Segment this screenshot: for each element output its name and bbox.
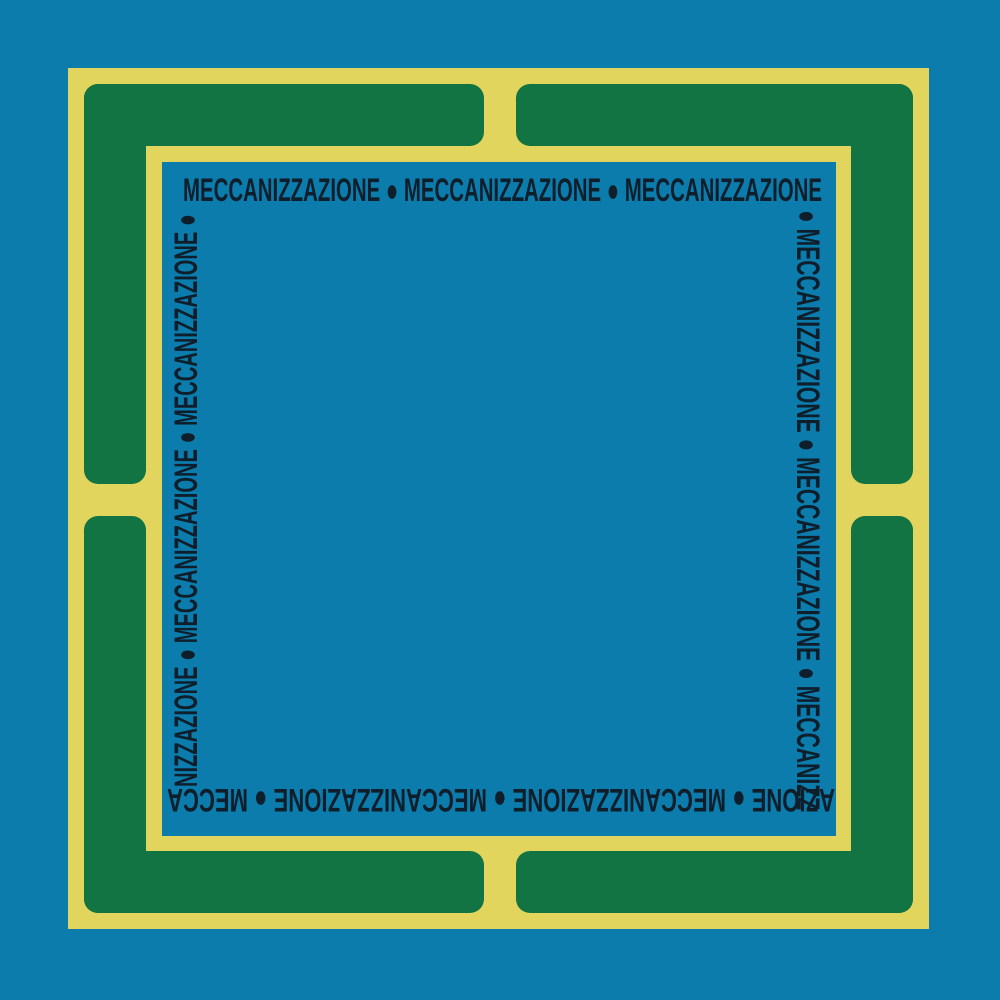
green-bar-top-right-vertical [851,84,913,484]
ring-text-right: ● MECCANIZZAZIONE ● MECCANIZZAZIONE ● ME… [790,210,826,810]
green-bar-bottom-right-vertical [851,516,913,913]
ring-text-bottom: AZIONE ● MECCANIZZAZIONE ● MECCANIZZAZIO… [167,782,835,818]
green-bar-top-left-vertical [84,84,146,484]
cover-canvas: MECCANIZZAZIONE ● MECCANIZZAZIONE ● MECC… [0,0,1000,1000]
ring-text-top: MECCANIZZAZIONE ● MECCANIZZAZIONE ● MECC… [183,172,822,208]
green-bar-bottom-left-vertical [84,516,146,913]
ring-text-left: NIZZAZIONE ● MECCANIZZAZIONE ● MECCANIZZ… [168,214,204,787]
album-cover-artwork: MECCANIZZAZIONE ● MECCANIZZAZIONE ● MECC… [0,0,1000,1000]
